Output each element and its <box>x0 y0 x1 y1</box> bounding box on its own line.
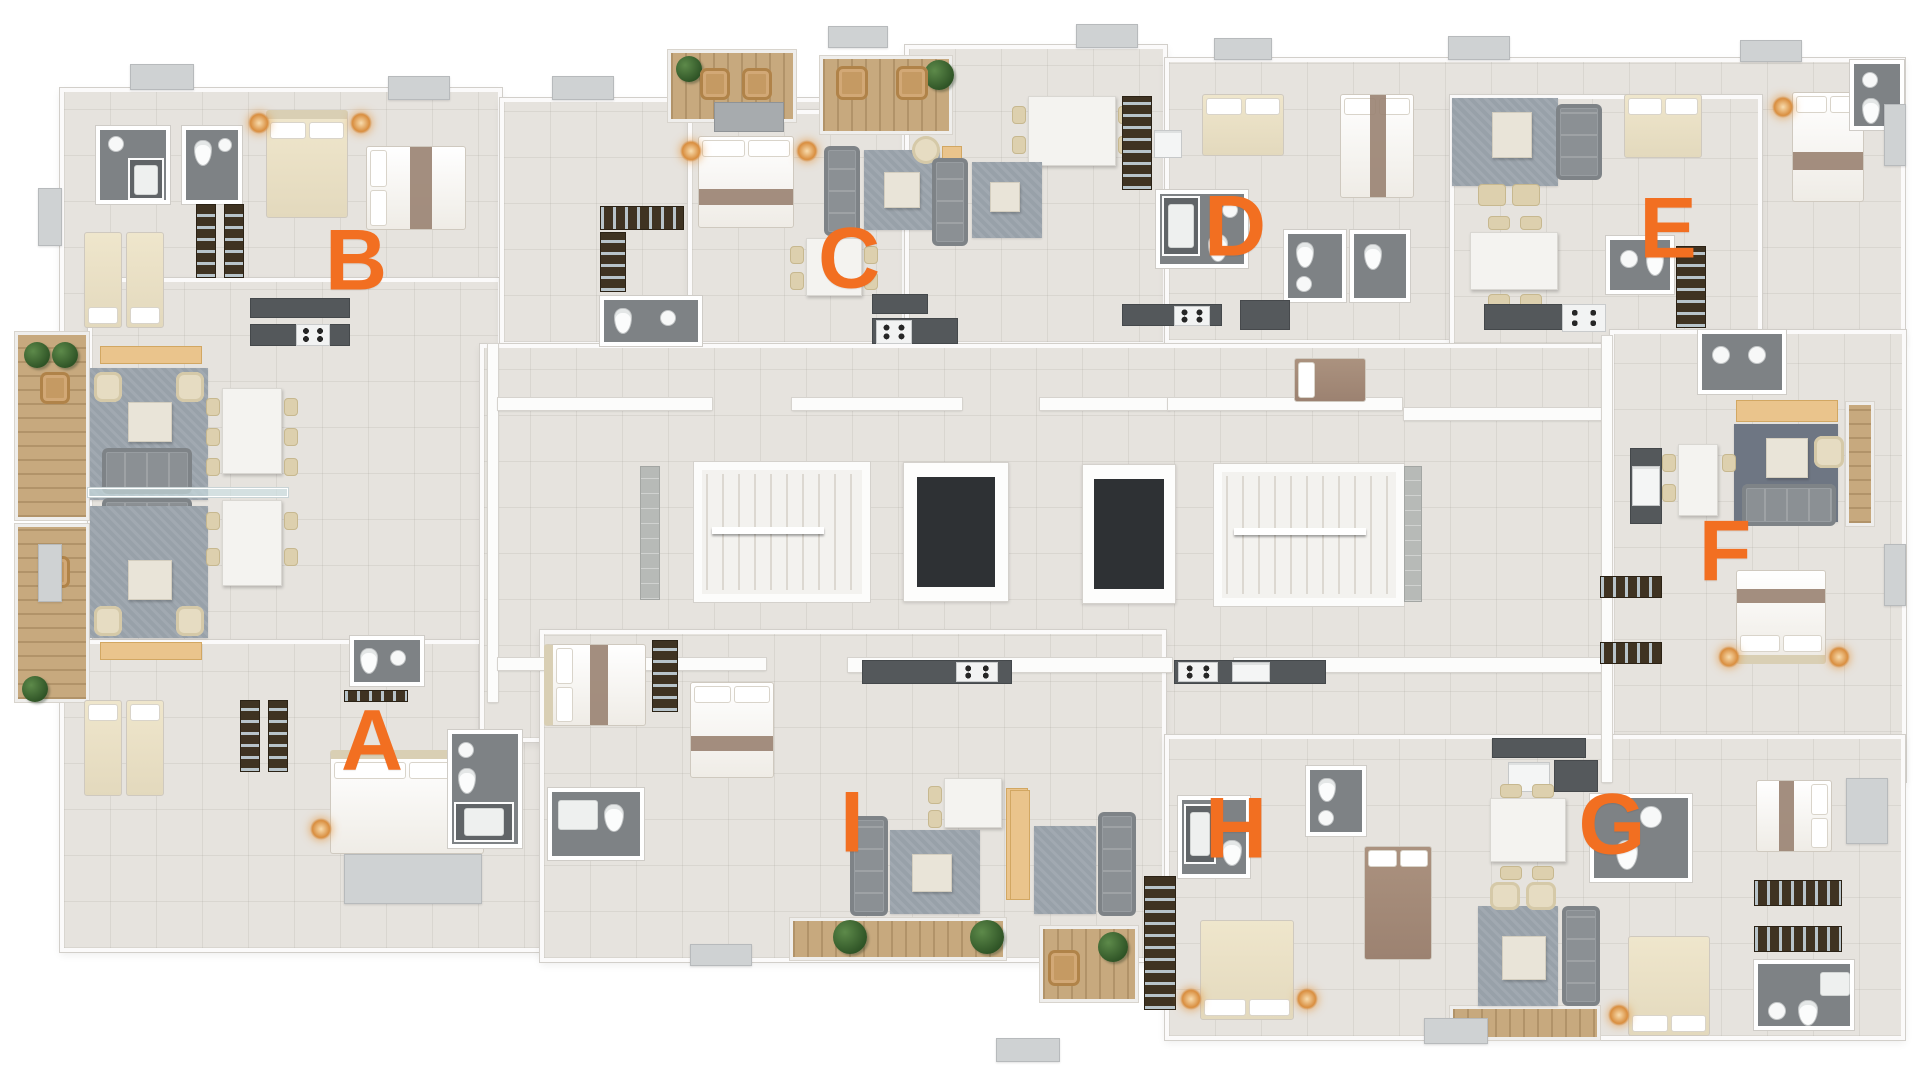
unit-label-i: I <box>840 780 864 866</box>
dining-chair <box>1488 216 1510 230</box>
shower-tray <box>464 808 504 836</box>
dining-chair <box>1500 866 1522 880</box>
dining-chair <box>1532 866 1554 880</box>
bathroom <box>1306 766 1366 836</box>
unit-label-d: D <box>1204 184 1266 270</box>
armchair <box>1814 436 1844 468</box>
dining-chair <box>284 428 298 446</box>
appliance <box>1632 466 1660 506</box>
dining-chair <box>1512 184 1540 206</box>
exterior-stub <box>1424 1018 1488 1044</box>
wicker-chair <box>1048 950 1080 986</box>
bed <box>266 110 348 218</box>
bed <box>84 700 122 796</box>
toilet <box>604 804 624 832</box>
appliance <box>1154 130 1182 158</box>
sideboard <box>100 346 202 364</box>
bed <box>1294 358 1366 402</box>
armchair <box>1526 882 1556 910</box>
exterior-stub <box>38 544 62 602</box>
wall <box>1168 398 1402 410</box>
toilet <box>1862 98 1880 124</box>
bed <box>126 700 164 796</box>
sofa <box>1562 906 1600 1006</box>
coffee-table <box>990 182 1020 212</box>
bedside-lamp-icon <box>350 112 372 134</box>
staircase <box>1214 464 1404 606</box>
plant-icon <box>970 920 1004 954</box>
rug <box>1034 826 1096 914</box>
stove <box>876 320 912 344</box>
bathroom <box>548 788 644 860</box>
exterior-stub <box>996 1038 1060 1062</box>
bed <box>690 682 774 778</box>
unit-label-b: B <box>325 218 387 304</box>
bathroom <box>1754 960 1854 1030</box>
dining-chair <box>1662 484 1676 502</box>
wardrobe <box>1144 876 1176 1010</box>
elevator <box>1082 464 1176 604</box>
plant-icon <box>676 56 702 82</box>
wicker-chair <box>896 66 928 100</box>
sink <box>458 742 474 758</box>
stove <box>1178 662 1218 682</box>
tv-panel <box>714 102 784 132</box>
dining-chair <box>790 272 804 290</box>
coffee-table <box>128 560 172 600</box>
bedside-lamp-icon <box>1608 1004 1630 1026</box>
elevator-shaft <box>917 477 995 587</box>
dining-chair <box>1662 454 1676 472</box>
coffee-table <box>1502 936 1546 980</box>
plant-icon <box>22 676 48 702</box>
sink <box>1748 346 1766 364</box>
wardrobe <box>1600 576 1662 598</box>
elevator <box>903 462 1009 602</box>
bathroom <box>1284 230 1346 302</box>
unit-label-a: A <box>341 698 403 784</box>
core-tile-strip <box>1404 466 1422 602</box>
unit-label-h: H <box>1205 786 1267 872</box>
bathroom <box>600 296 702 346</box>
dining-chair <box>284 458 298 476</box>
bedside-lamp-icon <box>1180 988 1202 1010</box>
sideboard <box>100 642 202 660</box>
wall <box>1404 408 1606 420</box>
dining-table <box>1490 798 1566 862</box>
sofa <box>1556 104 1602 180</box>
exterior-stub <box>552 76 614 100</box>
armchair <box>176 606 204 636</box>
plant-icon <box>52 342 78 368</box>
glass-partition <box>88 488 288 497</box>
shower <box>128 158 164 200</box>
sink <box>1712 346 1730 364</box>
shower-tray <box>134 165 158 195</box>
dining-chair <box>1520 216 1542 230</box>
dining-chair <box>1532 784 1554 798</box>
coffee-table <box>912 854 952 892</box>
wall <box>498 398 712 410</box>
exterior-stub <box>344 854 482 904</box>
elevator-shaft <box>1094 479 1164 589</box>
shower <box>1162 196 1200 256</box>
kitchen-counter <box>872 294 928 314</box>
floor-slab <box>1610 330 1906 782</box>
exterior-stub <box>388 76 450 100</box>
sideboard <box>1010 790 1030 900</box>
stove <box>1174 306 1210 326</box>
bed <box>126 232 164 328</box>
wardrobe <box>224 204 244 278</box>
exterior-stub <box>1740 40 1802 62</box>
balcony <box>1846 402 1874 526</box>
sink <box>1862 72 1878 88</box>
exterior-stub <box>130 64 194 90</box>
wall <box>488 344 498 702</box>
dining-chair <box>1012 106 1026 124</box>
dining-chair <box>206 458 220 476</box>
coffee-table <box>884 172 920 208</box>
sofa <box>1742 484 1836 526</box>
bedside-lamp-icon <box>1772 96 1794 118</box>
bed <box>1200 920 1294 1020</box>
bathroom <box>182 126 242 204</box>
shower-tray <box>1820 972 1850 996</box>
dining-chair <box>790 246 804 264</box>
wardrobe <box>652 640 678 712</box>
wall <box>792 398 962 410</box>
toilet <box>458 768 476 794</box>
toilet <box>1296 242 1314 268</box>
armchair <box>94 372 122 402</box>
stair-rail <box>1234 528 1366 535</box>
stove <box>956 662 998 682</box>
dining-chair <box>1012 136 1026 154</box>
sink <box>1768 1002 1786 1020</box>
wicker-chair <box>742 68 772 100</box>
sink <box>1296 276 1312 292</box>
sideboard <box>1736 400 1838 422</box>
dining-chair <box>284 548 298 566</box>
unit-label-c: C <box>818 216 880 302</box>
appliance <box>1232 662 1270 682</box>
floor-plan: A B C D E F G H I <box>0 0 1920 1079</box>
shower-tray <box>558 800 598 830</box>
dining-chair <box>206 548 220 566</box>
wall <box>1602 336 1612 782</box>
plant-icon <box>1098 932 1128 962</box>
dining-table <box>222 500 282 586</box>
bedside-lamp-icon <box>1828 646 1850 668</box>
wicker-chair <box>700 68 730 100</box>
wardrobe <box>240 700 260 772</box>
plant-icon <box>24 342 50 368</box>
sink <box>390 650 406 666</box>
dining-chair <box>928 810 942 828</box>
bathroom <box>350 636 424 686</box>
bedside-lamp-icon <box>1296 988 1318 1010</box>
bathroom <box>1698 330 1786 394</box>
stove <box>1562 304 1606 332</box>
exterior-stub <box>38 188 62 246</box>
dining-table <box>222 388 282 474</box>
exterior-stub <box>1884 544 1906 606</box>
toilet <box>1798 1000 1818 1026</box>
wardrobe <box>1122 96 1152 190</box>
bedside-lamp-icon <box>680 140 702 162</box>
wall <box>1040 398 1170 410</box>
bed <box>1628 936 1710 1036</box>
wardrobe <box>600 206 684 230</box>
dining-chair <box>1478 184 1506 206</box>
dining-chair <box>1500 784 1522 798</box>
dining-chair <box>284 512 298 530</box>
toilet <box>614 308 632 334</box>
bedside-lamp-icon <box>1718 646 1740 668</box>
sofa <box>1098 812 1136 916</box>
bed <box>1202 94 1284 156</box>
kitchen-counter <box>1240 300 1290 330</box>
bed <box>1756 780 1832 852</box>
dining-table <box>1028 96 1116 166</box>
dining-chair <box>206 398 220 416</box>
exterior-stub <box>1076 24 1138 48</box>
shower-tray <box>1168 204 1194 248</box>
dining-chair <box>1722 454 1736 472</box>
armchair <box>176 372 204 402</box>
core-tile-strip <box>640 466 660 600</box>
wardrobe <box>1600 642 1662 664</box>
dining-table <box>944 778 1002 828</box>
unit-label-f: F <box>1699 509 1752 595</box>
toilet <box>1318 778 1336 802</box>
unit-label-e: E <box>1639 186 1696 272</box>
exterior-stub <box>1846 778 1888 844</box>
unit-label-g: G <box>1579 782 1646 868</box>
exterior-stub <box>690 944 752 966</box>
stair-rail <box>712 527 824 534</box>
dining-chair <box>206 512 220 530</box>
toilet <box>1364 244 1382 270</box>
bed <box>84 232 122 328</box>
bathroom <box>96 126 170 204</box>
wardrobe <box>1754 926 1842 952</box>
dining-table <box>1470 232 1558 290</box>
coffee-table <box>1492 112 1532 158</box>
sink <box>1318 810 1334 826</box>
bedside-lamp-icon <box>310 818 332 840</box>
plant-icon <box>924 60 954 90</box>
sink <box>660 310 676 326</box>
kitchen-counter <box>1492 738 1586 758</box>
coffee-table <box>128 402 172 442</box>
bed <box>1340 94 1414 198</box>
exterior-stub <box>1884 104 1906 166</box>
bathroom <box>1350 230 1410 302</box>
bed <box>544 644 646 726</box>
exterior-stub <box>1448 36 1510 60</box>
stove <box>296 324 330 346</box>
exterior-stub <box>1214 38 1272 60</box>
dining-chair <box>928 786 942 804</box>
wardrobe <box>1754 880 1842 906</box>
sofa <box>932 158 968 246</box>
bedside-lamp-icon <box>248 112 270 134</box>
bed <box>698 136 794 228</box>
kitchen-counter <box>1484 304 1570 330</box>
wicker-chair <box>40 372 70 404</box>
exterior-stub <box>828 26 888 48</box>
dining-chair <box>284 398 298 416</box>
sink <box>108 136 124 152</box>
armchair <box>1490 882 1520 910</box>
sink <box>1620 250 1638 268</box>
toilet <box>360 648 378 674</box>
coffee-table <box>1766 438 1808 478</box>
bed <box>1364 846 1432 960</box>
armchair <box>94 606 122 636</box>
toilet <box>194 140 212 166</box>
sink <box>218 138 232 152</box>
wardrobe <box>600 232 626 292</box>
bathroom <box>448 730 522 848</box>
shower <box>454 802 514 842</box>
wardrobe <box>196 204 216 278</box>
bed <box>1624 94 1702 158</box>
plant-icon <box>833 920 867 954</box>
bedside-lamp-icon <box>796 140 818 162</box>
dining-chair <box>206 428 220 446</box>
wicker-chair <box>836 66 868 100</box>
wardrobe <box>268 700 288 772</box>
